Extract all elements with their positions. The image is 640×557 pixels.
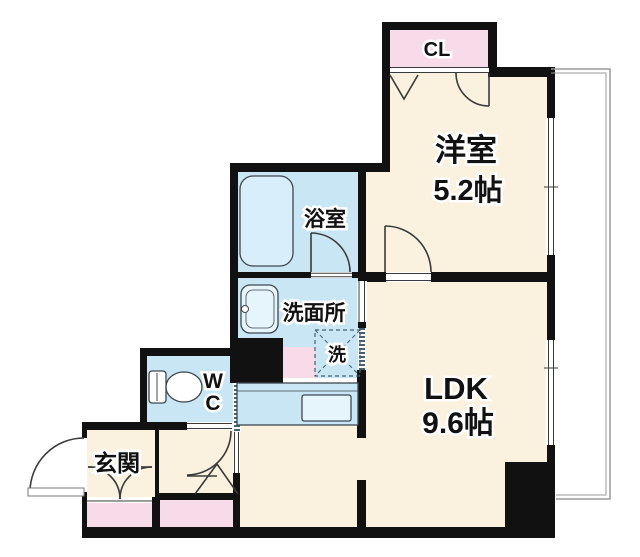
ldk-size: 9.6帖 xyxy=(422,407,494,440)
wall-segment xyxy=(82,422,187,430)
wall-segment xyxy=(155,430,159,497)
wall-segment xyxy=(547,67,555,118)
entrance-opening xyxy=(82,438,87,492)
entrance-door xyxy=(28,438,84,496)
wall-segment xyxy=(547,282,555,340)
wall-segment xyxy=(233,473,240,538)
western-room-size: 5.2帖 xyxy=(433,174,502,207)
hallway-floor xyxy=(159,430,233,497)
porch-right-floor xyxy=(160,500,233,527)
ldk-window xyxy=(546,340,556,445)
wall-segment xyxy=(357,480,366,538)
wall-segment xyxy=(140,348,233,356)
kitchen-counter-icon xyxy=(237,383,358,425)
wall-segment xyxy=(382,22,497,30)
toilet-icon xyxy=(149,371,202,403)
wall-segment xyxy=(488,67,555,77)
porch-left-floor xyxy=(87,503,152,527)
wc-label-line2: C xyxy=(205,392,220,415)
wall-segment xyxy=(230,338,283,383)
wc-label-line1: W xyxy=(203,370,223,393)
wall-segment xyxy=(505,462,555,538)
wall-segment xyxy=(382,22,390,172)
bathroom-label: 浴室 xyxy=(304,207,346,231)
western-room-label: 洋室 xyxy=(435,133,497,168)
wall-segment xyxy=(159,493,233,500)
ldk-label: LDK xyxy=(424,371,488,406)
western-room-floor xyxy=(366,67,548,272)
wall-segment xyxy=(140,348,147,430)
wall-segment xyxy=(230,163,238,338)
laundry-label: 洗 xyxy=(328,344,346,365)
balcony-fence xyxy=(551,69,610,499)
entrance-label: 玄関 xyxy=(94,450,140,476)
floorplan-page: CL 洋室 5.2帖 浴室 洗面所 洗 W C 玄関 LDK 9.6帖 xyxy=(0,0,640,557)
washroom-label: 洗面所 xyxy=(283,302,346,325)
bathtub-icon xyxy=(240,176,293,266)
washbasin-faucet xyxy=(242,306,249,313)
closet-label: CL xyxy=(424,39,451,61)
wall-segment xyxy=(152,497,160,538)
washroom-mat xyxy=(283,347,315,378)
floorplan-svg: CL 洋室 5.2帖 浴室 洗面所 洗 W C 玄関 LDK 9.6帖 xyxy=(0,0,640,557)
